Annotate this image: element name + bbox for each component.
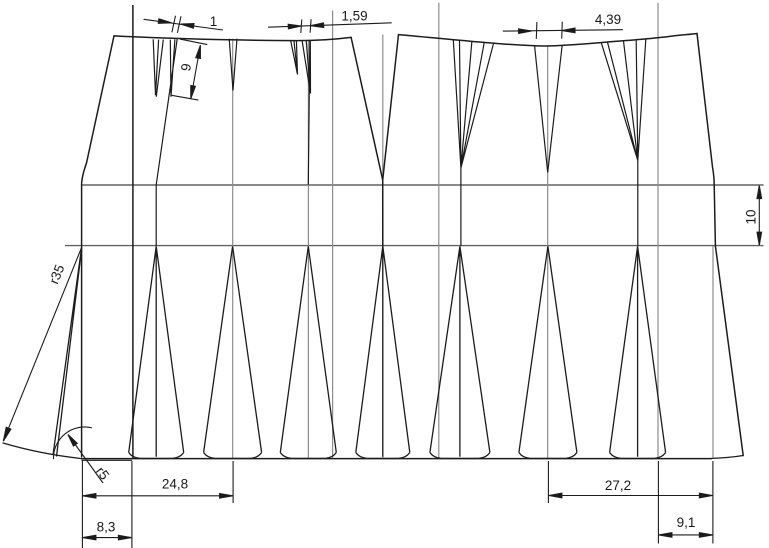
svg-text:1: 1 xyxy=(210,14,218,29)
svg-text:4,39: 4,39 xyxy=(595,12,621,27)
svg-text:9,1: 9,1 xyxy=(677,515,696,530)
svg-text:10: 10 xyxy=(744,209,759,224)
svg-text:8,3: 8,3 xyxy=(97,520,116,535)
svg-text:1,59: 1,59 xyxy=(341,9,367,24)
svg-text:27,2: 27,2 xyxy=(605,478,631,493)
svg-text:24,8: 24,8 xyxy=(162,477,188,492)
